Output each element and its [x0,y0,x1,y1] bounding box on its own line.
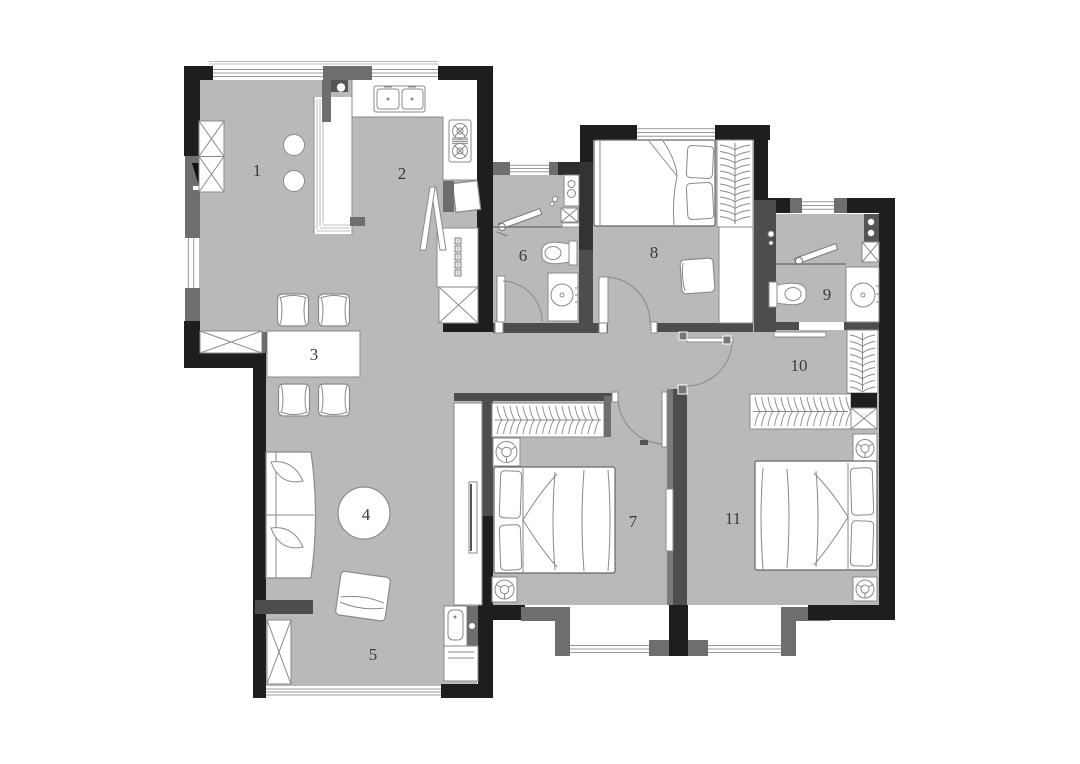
svg-text:3: 3 [310,345,319,364]
svg-text:6: 6 [519,246,528,265]
svg-text:2: 2 [398,164,407,183]
svg-text:10: 10 [791,356,808,375]
svg-text:8: 8 [650,243,659,262]
svg-text:1: 1 [253,161,262,180]
svg-text:4: 4 [362,505,371,524]
svg-text:7: 7 [629,512,638,531]
svg-text:9: 9 [823,285,832,304]
svg-text:11: 11 [725,509,741,528]
svg-text:5: 5 [369,645,378,664]
